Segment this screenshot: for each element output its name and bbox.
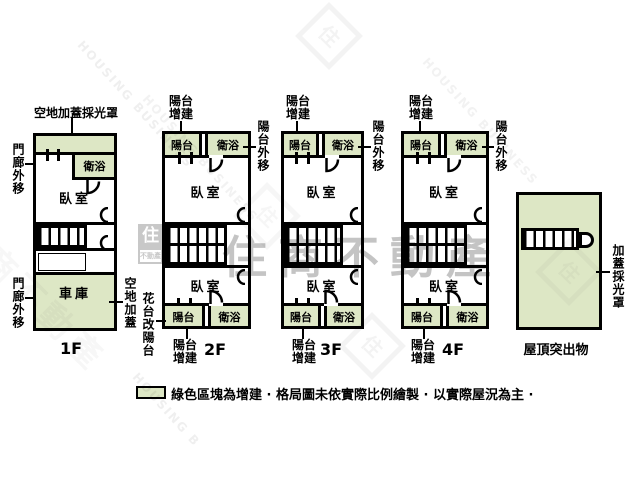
pointer-line <box>419 121 421 132</box>
pointer-line <box>25 297 36 299</box>
bathroom-label: 衛浴 <box>75 158 114 174</box>
pointer-line <box>358 146 371 148</box>
staircase <box>165 225 227 265</box>
brand-logo-subtext: 不動產 <box>138 248 163 264</box>
floorplan-unit-3f: 陽台 衛浴 臥室 臥室 陽台 衛浴 <box>281 131 364 329</box>
balcony-moved-out-label: 陽台外移 <box>256 120 270 176</box>
balcony-addition-label-top: 陽台增建 <box>168 95 194 121</box>
bedroom-label: 臥室 <box>284 276 361 295</box>
balcony-addition-label-bottom: 陽台增建 <box>410 339 436 365</box>
staircase <box>36 225 87 248</box>
brand-logo-char: 住 <box>138 224 163 248</box>
pointer-line <box>109 301 123 303</box>
door-arc <box>447 289 462 304</box>
wall <box>438 134 441 155</box>
staircase <box>284 225 343 265</box>
door-arc <box>447 158 462 173</box>
bathroom-label: 衛浴 <box>211 309 248 325</box>
floorplan-canvas: 衛浴 臥室 車庫 空地加蓋採光罩 門廊外移 門廊外移 空地加蓋 1F 陽台 衛浴… <box>0 0 640 480</box>
porch-moved-label-lower: 門廊外移 <box>11 277 25 333</box>
wall <box>440 306 443 326</box>
door-jamb <box>46 149 49 161</box>
bedroom-label: 臥室 <box>404 182 486 201</box>
pointer-line <box>156 320 166 322</box>
door-arc <box>324 289 339 304</box>
door-arc <box>233 207 247 223</box>
pointer-line <box>302 328 304 339</box>
wall <box>202 306 205 326</box>
garage-label: 車庫 <box>36 283 114 302</box>
roof-structure-label: 屋頂突出物 <box>516 339 596 358</box>
pointer-line <box>596 271 610 273</box>
wall <box>165 265 248 268</box>
balcony-label: 陽台 <box>165 309 202 325</box>
pointer-line <box>25 163 36 165</box>
porch-moved-label-upper: 門廊外移 <box>11 143 25 199</box>
bathroom-label: 衛浴 <box>449 309 486 325</box>
floor-label-1f: 1F <box>60 339 82 358</box>
legend-green-swatch <box>136 386 166 399</box>
door-arc <box>346 207 360 223</box>
pointer-line <box>423 328 425 339</box>
balcony-moved-out-label: 陽台外移 <box>371 120 385 176</box>
door-jamb <box>307 152 310 164</box>
door-jamb <box>416 152 419 164</box>
door-arc <box>325 158 340 173</box>
floor-label-3f: 3F <box>320 340 342 359</box>
open-air-cover-label: 空地加蓋 <box>123 277 137 333</box>
door-jamb <box>178 152 181 164</box>
balcony-label: 陽台 <box>284 137 316 153</box>
wall <box>199 134 202 155</box>
wall <box>284 265 361 268</box>
floorplan-unit-4f: 陽台 衛浴 臥室 臥室 陽台 衛浴 <box>401 131 489 329</box>
balcony-label: 陽台 <box>165 137 199 153</box>
pointer-line <box>296 121 298 132</box>
pointer-line <box>186 328 188 339</box>
door-jamb <box>57 149 60 161</box>
pointer-line <box>180 121 182 132</box>
legend-text: 綠色區塊為增建 · 格局圖未依實際比例繪製 · 以實際屋況為主 · <box>171 384 533 403</box>
wall <box>404 265 486 268</box>
floor-label-4f: 4F <box>442 340 464 359</box>
staircase <box>404 225 467 265</box>
balcony-label: 陽台 <box>404 309 440 325</box>
balcony-moved-out-label: 陽台外移 <box>494 120 508 176</box>
bathroom-label: 衛浴 <box>208 137 248 153</box>
staircase <box>521 228 579 250</box>
pointer-line <box>482 146 494 148</box>
balcony-label: 陽台 <box>404 137 438 153</box>
balcony-addition-label-top: 陽台增建 <box>408 95 434 121</box>
bedroom-label: 臥室 <box>404 276 486 295</box>
floorplan-unit-1f: 衛浴 臥室 車庫 <box>33 133 117 331</box>
bedroom-label: 臥室 <box>284 182 361 201</box>
door-jamb <box>428 152 431 164</box>
door-arc <box>209 158 224 173</box>
flowerbed-to-balcony-label: 花台改陽台 <box>141 292 155 362</box>
door-arc <box>470 207 484 223</box>
balcony-label: 陽台 <box>284 309 318 325</box>
wall <box>36 248 114 251</box>
bedroom-label: 臥室 <box>36 188 114 207</box>
bedroom-label: 臥室 <box>165 182 248 201</box>
wall <box>316 134 319 155</box>
wall <box>318 306 321 326</box>
brand-logo-stamp: 住 不動產 <box>138 224 163 264</box>
pointer-line <box>243 146 256 148</box>
brand-stamp: 住 <box>295 2 363 70</box>
stair-end-cap <box>579 232 594 248</box>
door-arc <box>96 207 110 223</box>
balcony-addition-label-bottom: 陽台增建 <box>172 339 198 365</box>
brand-watermark-diagonal: HOUSING B <box>130 370 204 449</box>
door-jamb <box>295 152 298 164</box>
under-stair-area <box>38 253 86 271</box>
floorplan-unit-roof <box>516 192 602 330</box>
skylight-cover-label: 空地加蓋採光罩 <box>26 104 126 121</box>
skylight-cover-label: 加蓋採光罩 <box>611 244 625 314</box>
balcony-addition-label-bottom: 陽台增建 <box>291 339 317 365</box>
bathroom-label: 衛浴 <box>327 309 361 325</box>
bathroom-label: 衛浴 <box>325 137 361 153</box>
balcony-addition-label-top: 陽台增建 <box>285 95 311 121</box>
floor-label-2f: 2F <box>204 340 226 359</box>
bedroom-label: 臥室 <box>165 276 248 295</box>
pointer-line <box>71 118 73 133</box>
bathroom-label: 衛浴 <box>447 137 486 153</box>
door-arc <box>209 289 224 304</box>
door-jamb <box>190 152 193 164</box>
floorplan-unit-2f: 陽台 衛浴 臥室 臥室 陽台 衛浴 <box>162 131 251 329</box>
